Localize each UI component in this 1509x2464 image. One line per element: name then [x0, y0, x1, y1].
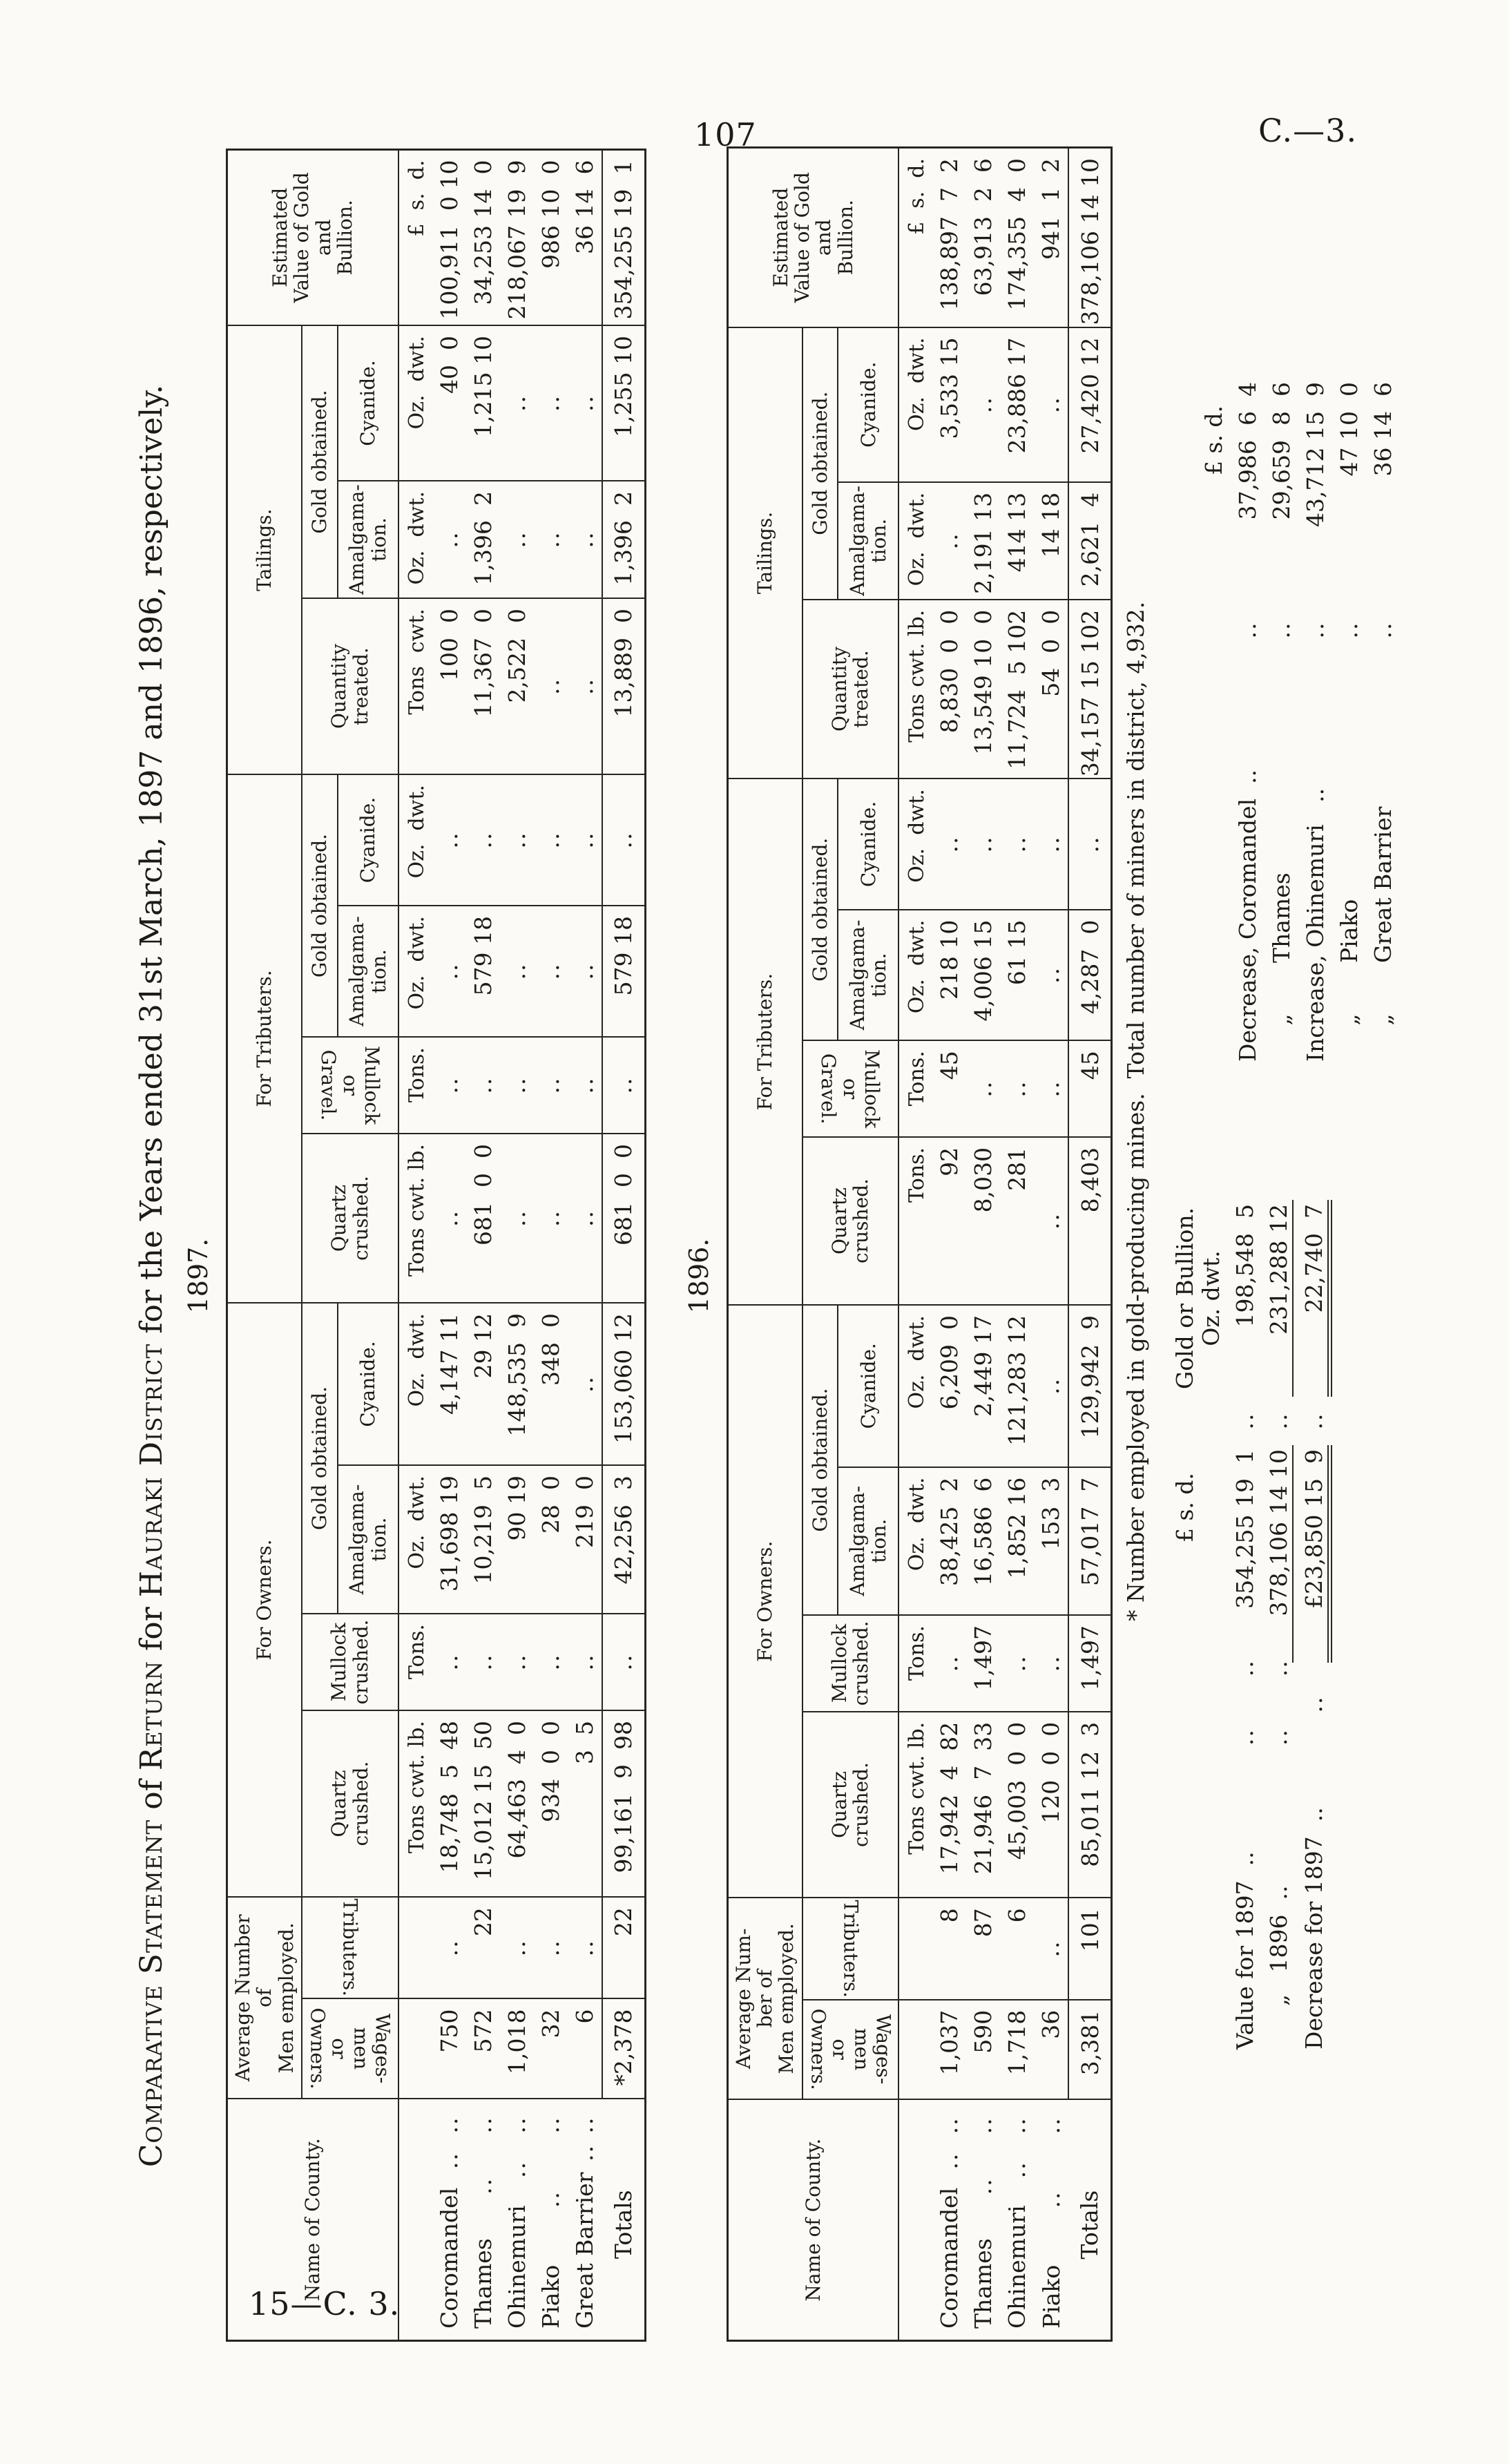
dot-leader: ..: [503, 2117, 530, 2134]
unit-cell: Oz. dwt.: [398, 1465, 432, 1614]
document-code: C.—3.: [1258, 112, 1357, 149]
totals-cell: ..: [602, 774, 646, 906]
col-header-amalgamation: Amalgama- tion.: [338, 906, 398, 1037]
unit-cell: [898, 2000, 932, 2100]
data-cell: ..: [568, 1614, 602, 1710]
header-row-2: Wages-men or Owners.Tributers.Quartz cru…: [802, 148, 838, 2341]
unit-cell: Oz. dwt.: [398, 774, 432, 906]
unit-cell: Oz. dwt.: [898, 1305, 932, 1467]
change-amount: 36 14 6: [1369, 378, 1396, 592]
unit-cell: [898, 1898, 932, 1999]
change-amount: 43,712 15 9: [1302, 378, 1329, 592]
col-header-gold-obtained-tailings: Gold obtained.: [302, 325, 338, 598]
data-cell: 11,724 5 102: [1000, 600, 1034, 779]
col-header-cyanide: Cyanide.: [338, 325, 398, 481]
dot-leader: ..: [571, 2144, 598, 2161]
data-cell: 934 0 0: [534, 1710, 568, 1897]
dot-leader: ..: [970, 2177, 997, 2195]
data-cell: 153 3: [1034, 1467, 1068, 1615]
col-header-estimated-value: Estimated Value of Gold and Bullion.: [227, 149, 398, 325]
dot-leader: ..: [1038, 2191, 1065, 2208]
data-cell: 1,018: [500, 1999, 534, 2099]
col-header-tributers: Tributers.: [302, 1897, 398, 1998]
totals-cell: 354,255 19 1: [602, 149, 646, 325]
data-cell: ..: [1000, 1615, 1034, 1712]
county-name: Thames: [470, 2238, 497, 2329]
unit-cell: Tons.: [898, 1040, 932, 1137]
data-cell: ..: [432, 1134, 466, 1303]
data-cell: 348 0: [534, 1303, 568, 1465]
data-cell: 148,535 9: [500, 1303, 534, 1465]
data-cell: ..: [1000, 1040, 1034, 1137]
unit-cell: Oz. dwt.: [398, 906, 432, 1037]
col-header-mullock-crushed: Mullock crushed.: [302, 1614, 398, 1710]
data-cell: 54 0 0: [1034, 600, 1068, 779]
dot-leader: ..: [571, 2117, 598, 2134]
data-cell: ..: [466, 1037, 500, 1134]
page-title: Comparative Statement of Return for Haur…: [134, 146, 169, 2405]
data-cell: 218,067 19 9: [500, 149, 534, 325]
totals-cell: 8,403: [1068, 1137, 1112, 1305]
data-cell: 45,003 0 0: [1000, 1712, 1034, 1898]
header-row-1: Name of County.Average Num- ber of Men e…: [727, 148, 802, 2341]
col-header-wages-men-text: Wages-men or Owners.: [307, 2001, 393, 2097]
col-header-quartz-crushed-tributers: Quartz crushed.: [302, 1134, 398, 1303]
unit-cell: Tons cwt. lb.: [898, 1712, 932, 1898]
county-name-flex: Piako....: [1038, 2110, 1065, 2329]
data-cell: ..: [432, 481, 466, 598]
unit-cell: £ s. d.: [898, 148, 932, 327]
county-name-flex: Thames....: [470, 2110, 497, 2329]
col-header-amalgamation: Amalgama- tion.: [838, 482, 898, 600]
change-summary: £ s. d.Decrease, Coromandel ....37,986 6…: [1201, 378, 1396, 1062]
table-1897: Name of County.Average Number of Men emp…: [226, 146, 646, 2405]
data-cell: ..: [534, 1897, 568, 1998]
col-header-mullock-or-gravel: Mullock or Gravel.: [802, 1040, 898, 1137]
dot-leader: ..: [436, 2117, 463, 2134]
title-part: Hauraki District: [134, 1344, 169, 1597]
totals-cell: *2,378: [602, 1999, 646, 2099]
table-row: Ohinemuri....1,718645,003 0 0..1,852 161…: [1000, 148, 1034, 2341]
col-header-tributers: Tributers.: [802, 1898, 898, 1999]
dot-leader: ..: [537, 2190, 564, 2208]
totals-cell: 22: [602, 1897, 646, 1998]
dot-leader: ..: [1369, 592, 1396, 668]
data-cell: ..: [432, 906, 466, 1037]
totals-cell: 99,161 9 98: [602, 1710, 646, 1897]
col-header-estimated-value: Estimated Value of Gold and Bullion.: [727, 148, 898, 327]
data-cell: 90 19: [500, 1465, 534, 1614]
data-cell: ..: [1034, 779, 1068, 909]
table-row: Piako....32..934 0 0..28 0348 0.........…: [534, 149, 568, 2340]
col-header-mullock-or-gravel: Mullock or Gravel.: [302, 1037, 398, 1134]
title-part: for: [134, 1597, 169, 1661]
dot-leader: ..: [1265, 1397, 1294, 1445]
col-header-wages-men-text: Wages-men or Owners.: [807, 2002, 894, 2098]
dot-leader: ..: [1003, 2117, 1030, 2134]
data-cell: ..: [534, 1134, 568, 1303]
data-cell: ..: [1034, 1137, 1068, 1305]
data-cell: ..: [568, 1134, 602, 1303]
data-cell: 1,852 16: [1000, 1467, 1034, 1615]
data-cell: 6,209 0: [932, 1305, 966, 1467]
data-cell: ..: [432, 1897, 466, 1998]
col-header-quartz-crushed-owners: Quartz crushed.: [802, 1712, 898, 1898]
data-cell: ..: [568, 598, 602, 774]
dot-leader: ..: [1302, 592, 1329, 668]
title-part: for the Years ended 31st March, 1897 and…: [134, 385, 169, 1344]
totals-cell: ..: [602, 1614, 646, 1710]
data-cell: ..: [568, 1303, 602, 1465]
data-cell: ..: [500, 774, 534, 906]
county-name-flex: Piako....: [537, 2110, 564, 2329]
data-cell: 414 13: [1000, 482, 1034, 600]
data-cell: 8: [932, 1898, 966, 1999]
year-label-1896: 1896.: [684, 146, 714, 2405]
data-cell: 941 1 2: [1034, 148, 1068, 327]
county-name: Piako: [537, 2265, 564, 2329]
data-cell: 34,253 14 0: [466, 149, 500, 325]
data-cell: 23,886 17: [1000, 327, 1034, 482]
data-cell: 681 0 0: [466, 1134, 500, 1303]
unit-cell: Tons cwt. lb.: [898, 600, 932, 779]
dot-leader: .. ..: [1231, 1663, 1258, 1746]
col-header-tributers-text: Tributers.: [339, 1899, 361, 1996]
data-cell: ..: [466, 1614, 500, 1710]
unit-cell: Tons.: [898, 1615, 932, 1712]
change-row-label: „ Piako: [1336, 668, 1363, 1062]
county-cell: Thames....: [466, 2099, 500, 2341]
col-header-tailings: Tailings.: [227, 325, 302, 774]
county-name-flex: Thames....: [970, 2110, 997, 2329]
unit-cell: Tons.: [398, 1614, 432, 1710]
data-cell: 2,191 13: [966, 482, 1000, 600]
data-cell: ..: [568, 1037, 602, 1134]
table-head: Name of County.Average Number of Men emp…: [227, 149, 398, 2340]
col-header-amalgamation: Amalgama- tion.: [838, 910, 898, 1041]
data-cell: 8,030: [966, 1137, 1000, 1305]
unit-cell: [398, 1999, 432, 2099]
county-cell: Coromandel....: [932, 2099, 966, 2340]
data-cell: ..: [1000, 779, 1034, 909]
data-cell: 87: [966, 1898, 1000, 1999]
col-header-mullock-or-gravel-text: Mullock or Gravel.: [318, 1039, 383, 1131]
change-amount: 37,986 6 4: [1234, 378, 1261, 592]
data-cell: 986 10 0: [534, 149, 568, 325]
dot-leader: ..: [936, 2152, 963, 2170]
unit-cell: Oz. dwt.: [398, 1303, 432, 1465]
table-row: Great Barrier....6..3 5..219 0..........…: [568, 149, 602, 2340]
col-header-wages-men: Wages-men or Owners.: [802, 2000, 898, 2100]
data-cell: 579 18: [466, 906, 500, 1037]
pounds-header: £ s. d.: [1201, 378, 1227, 592]
totals-label: Totals: [602, 2099, 646, 2341]
col-header-gold-obtained-tributers: Gold obtained.: [302, 774, 338, 1037]
county-name: Great Barrier: [571, 2172, 598, 2329]
data-cell: 16,586 6: [966, 1467, 1000, 1615]
data-cell: 100 0: [432, 598, 466, 774]
data-cell: ..: [932, 1615, 966, 1712]
units-name-cell: [898, 2099, 932, 2340]
totals-cell: 27,420 12: [1068, 327, 1112, 482]
data-cell: ..: [534, 906, 568, 1037]
data-cell: ..: [1034, 1898, 1068, 1999]
data-cell: 15,012 15 50: [466, 1710, 500, 1897]
data-cell: 121,283 12: [1000, 1305, 1034, 1467]
totals-cell: 101: [1068, 1898, 1112, 1999]
totals-cell: ..: [1068, 779, 1112, 909]
unit-cell: [398, 1897, 432, 1998]
data-cell: ..: [432, 1614, 466, 1710]
data-cell: 36 14 6: [568, 149, 602, 325]
summary-row-label: Decrease for 1897 ..: [1300, 1746, 1332, 2050]
comparative-return-table: Name of County.Average Number of Men emp…: [226, 149, 646, 2342]
totals-cell: 153,060 12: [602, 1303, 646, 1465]
data-cell: ..: [932, 482, 966, 600]
data-cell: ..: [1034, 910, 1068, 1041]
totals-cell: 3,381: [1068, 2000, 1112, 2100]
data-cell: 4,147 11: [432, 1303, 466, 1465]
data-cell: 3,533 15: [932, 327, 966, 482]
col-header-average-number: Average Number of Men employed.: [227, 1897, 302, 2099]
pounds-amount: 354,255 19 1: [1231, 1445, 1258, 1663]
change-amount: 47 10 0: [1336, 378, 1363, 592]
col-header-for-owners: For Owners.: [227, 1303, 302, 1897]
dot-leader: ..: [936, 2117, 963, 2134]
totals-cell: 1,255 10: [602, 325, 646, 481]
change-row-label: „ Great Barrier: [1369, 668, 1396, 1062]
data-cell: 281: [1000, 1137, 1034, 1305]
data-cell: 8,830 0 0: [932, 600, 966, 779]
county-cell: Great Barrier....: [568, 2099, 602, 2341]
units-row: Tons cwt. lb.Tons.Oz. dwt.Oz. dwt.Tons c…: [398, 149, 432, 2340]
bullion-amount: 198,548 5: [1231, 1200, 1258, 1397]
data-cell: 18,748 5 48: [432, 1710, 466, 1897]
table-body: Tons cwt. lb.Tons.Oz. dwt.Oz. dwt.Tons.T…: [898, 148, 1112, 2341]
spacer: [1172, 1746, 1224, 2050]
bullion-header: Gold or Bullion. Oz. dwt.: [1172, 1200, 1224, 1397]
data-cell: 21,946 7 33: [966, 1712, 1000, 1898]
data-cell: 40 0: [432, 325, 466, 481]
col-header-tailings: Tailings.: [727, 327, 802, 779]
data-cell: ..: [500, 906, 534, 1037]
data-cell: ..: [966, 1040, 1000, 1137]
change-summary-grid: £ s. d.Decrease, Coromandel ....37,986 6…: [1201, 378, 1396, 1062]
totals-cell: 378,106 14 10: [1068, 148, 1112, 327]
data-cell: ..: [534, 481, 568, 598]
value-summary-grid: £ s. d.Gold or Bullion. Oz. dwt.Value fo…: [1172, 1200, 1332, 2050]
unit-cell: £ s. d.: [398, 149, 432, 325]
totals-label: Totals: [1068, 2099, 1112, 2340]
county-cell: Ohinemuri....: [1000, 2099, 1034, 2340]
col-header-cyanide: Cyanide.: [838, 1305, 898, 1467]
data-cell: 174,355 4 0: [1000, 148, 1034, 327]
data-cell: ..: [1034, 1305, 1068, 1467]
col-header-quantity-treated: Quantity treated.: [802, 600, 898, 779]
spacer: [1172, 1397, 1224, 1445]
unit-cell: Oz. dwt.: [898, 779, 932, 909]
data-cell: 2,449 17: [966, 1305, 1000, 1467]
col-header-cyanide: Cyanide.: [838, 327, 898, 482]
data-cell: 1,215 10: [466, 325, 500, 481]
data-cell: 63,913 2 6: [966, 148, 1000, 327]
table-row: Coromandel....1,037817,942 4 82..38,425 …: [932, 148, 966, 2341]
col-header-name-of-county: Name of County.: [727, 2099, 898, 2340]
table-row: Thames....5908721,946 7 331,49716,586 62…: [966, 148, 1000, 2341]
table-1896: Name of County.Average Num- ber of Men e…: [727, 146, 1113, 2405]
totals-cell: 45: [1068, 1040, 1112, 1137]
dot-leader: ..: [470, 2177, 497, 2195]
county-cell: Thames....: [966, 2099, 1000, 2340]
data-cell: ..: [534, 774, 568, 906]
county-name: Coromandel: [936, 2188, 963, 2329]
col-header-mullock-or-gravel-text: Mullock or Gravel.: [818, 1042, 883, 1135]
table-row: Piako....36..120 0 0..153 3..........54 …: [1034, 148, 1068, 2341]
data-cell: 10,219 5: [466, 1465, 500, 1614]
totals-cell: 681 0 0: [602, 1134, 646, 1303]
unit-cell: Oz. dwt.: [898, 327, 932, 482]
data-cell: 6: [568, 1999, 602, 2099]
data-cell: 31,698 19: [432, 1465, 466, 1614]
data-cell: ..: [500, 1134, 534, 1303]
table-row: Ohinemuri....1,018..64,463 4 0..90 19148…: [500, 149, 534, 2340]
unit-cell: Tons.: [398, 1037, 432, 1134]
data-cell: 36: [1034, 2000, 1068, 2100]
totals-row: Totals3,38110185,011 12 31,49757,017 712…: [1068, 148, 1112, 2341]
data-cell: ..: [500, 1037, 534, 1134]
bottom-section: * Number employed in gold-producing mine…: [1113, 146, 1410, 2405]
dot-leader: ..: [1231, 1397, 1258, 1445]
county-cell: Ohinemuri....: [500, 2099, 534, 2341]
pounds-amount: 378,106 14 10: [1265, 1445, 1294, 1663]
table-head: Name of County.Average Num- ber of Men e…: [727, 148, 898, 2341]
totals-cell: 579 18: [602, 906, 646, 1037]
col-header-for-tributers: For Tributers.: [227, 774, 302, 1303]
totals-cell: 1,396 2: [602, 481, 646, 598]
data-cell: 100,911 0 10: [432, 149, 466, 325]
unit-cell: Tons cwt.: [398, 598, 432, 774]
data-cell: 17,942 4 82: [932, 1712, 966, 1898]
col-header-mullock-crushed: Mullock crushed.: [802, 1615, 898, 1712]
dot-leader: ..: [436, 2152, 463, 2169]
county-name: Ohinemuri: [1003, 2205, 1030, 2329]
dot-leader: ..: [537, 2117, 564, 2134]
summary-row-label: Value for 1897 ..: [1231, 1746, 1258, 2050]
dot-leader: ..: [1038, 2117, 1065, 2134]
col-header-name-of-county: Name of County.: [227, 2099, 398, 2341]
table-row: Coromandel....750..18,748 5 48..31,698 1…: [432, 149, 466, 2340]
dot-leader: ..: [970, 2117, 997, 2134]
county-name-flex: Coromandel....: [936, 2110, 963, 2329]
col-header-quantity-treated: Quantity treated.: [302, 598, 398, 774]
data-cell: 572: [466, 1999, 500, 2099]
data-cell: ..: [534, 1037, 568, 1134]
data-cell: 219 0: [568, 1465, 602, 1614]
data-cell: 4,006 15: [966, 910, 1000, 1041]
col-header-for-tributers: For Tributers.: [727, 779, 802, 1305]
dot-leader: ..: [1300, 1663, 1332, 1746]
data-cell: ..: [500, 481, 534, 598]
spacer: [1201, 592, 1227, 668]
data-cell: ..: [432, 1037, 466, 1134]
dot-leader: ..: [1234, 592, 1261, 668]
col-header-gold-obtained-owners: Gold obtained.: [802, 1305, 838, 1615]
data-cell: ..: [568, 481, 602, 598]
data-cell: ..: [1034, 1040, 1068, 1137]
county-cell: Coromandel....: [432, 2099, 466, 2341]
rotated-content: Comparative Statement of Return for Haur…: [116, 146, 1425, 2405]
data-cell: 28 0: [534, 1465, 568, 1614]
data-cell: ..: [1034, 1615, 1068, 1712]
totals-cell: 4,287 0: [1068, 910, 1112, 1041]
col-header-cyanide: Cyanide.: [838, 779, 898, 909]
col-header-cyanide: Cyanide.: [338, 1303, 398, 1465]
data-cell: ..: [568, 1897, 602, 1998]
title-part: Return: [134, 1661, 169, 1770]
change-row-label: Decrease, Coromandel ..: [1234, 668, 1261, 1062]
bullion-amount: 22,740 7: [1300, 1200, 1332, 1397]
county-cell: Piako....: [534, 2099, 568, 2341]
totals-cell: 129,942 9: [1068, 1305, 1112, 1467]
county-name: Thames: [970, 2238, 997, 2329]
data-cell: 1,718: [1000, 2000, 1034, 2100]
data-cell: 3 5: [568, 1710, 602, 1897]
unit-cell: Oz. dwt.: [398, 325, 432, 481]
data-cell: 11,367 0: [466, 598, 500, 774]
unit-cell: Tons cwt. lb.: [398, 1134, 432, 1303]
totals-cell: 42,256 3: [602, 1465, 646, 1614]
col-header-amalgamation: Amalgama- tion.: [338, 481, 398, 598]
table-row: Thames....5722215,012 15 50..10,219 529 …: [466, 149, 500, 2340]
table-body: Tons cwt. lb.Tons.Oz. dwt.Oz. dwt.Tons c…: [398, 149, 646, 2340]
dot-leader: ..: [503, 2161, 530, 2178]
units-name-cell: [398, 2099, 432, 2341]
scanned-document-page: { "page": { "number": "107", "doc_code":…: [0, 0, 1509, 2464]
totals-cell: 85,011 12 3: [1068, 1712, 1112, 1898]
data-cell: 590: [966, 2000, 1000, 2100]
change-amount: 29,659 8 6: [1268, 378, 1295, 592]
data-cell: ..: [534, 1614, 568, 1710]
col-header-quartz-crushed-owners: Quartz crushed.: [302, 1710, 398, 1897]
summary-row-label: „ 1896 ..: [1265, 1746, 1294, 2050]
value-summary: £ s. d.Gold or Bullion. Oz. dwt.Value fo…: [1172, 1200, 1332, 2050]
pounds-amount: £23,850 15 9: [1300, 1445, 1332, 1663]
data-cell: 2,522 0: [500, 598, 534, 774]
county-name-flex: Ohinemuri....: [503, 2110, 530, 2329]
data-cell: 1,497: [966, 1615, 1000, 1712]
col-header-amalgamation: Amalgama- tion.: [838, 1467, 898, 1615]
unit-cell: Oz. dwt.: [898, 482, 932, 600]
year-label-1897: 1897.: [183, 146, 213, 2405]
totals-row: Totals*2,3782299,161 9 98..42,256 3153,0…: [602, 149, 646, 2340]
county-cell: Piako....: [1034, 2099, 1068, 2340]
data-cell: ..: [432, 774, 466, 906]
col-header-tributers-text: Tributers.: [840, 1900, 861, 1997]
col-header-for-owners: For Owners.: [727, 1305, 802, 1898]
data-cell: ..: [500, 1614, 534, 1710]
data-cell: ..: [534, 325, 568, 481]
data-cell: 29 12: [466, 1303, 500, 1465]
totals-cell: 1,497: [1068, 1615, 1112, 1712]
unit-cell: Tons.: [898, 1137, 932, 1305]
pounds-header: £ s. d.: [1172, 1445, 1224, 1663]
dot-leader: ..: [470, 2117, 497, 2134]
county-name: Ohinemuri: [503, 2205, 530, 2329]
change-row-label: „ Thames: [1268, 668, 1295, 1062]
data-cell: 22: [466, 1897, 500, 1998]
data-cell: 14 18: [1034, 482, 1068, 600]
data-cell: 64,463 4 0: [500, 1710, 534, 1897]
